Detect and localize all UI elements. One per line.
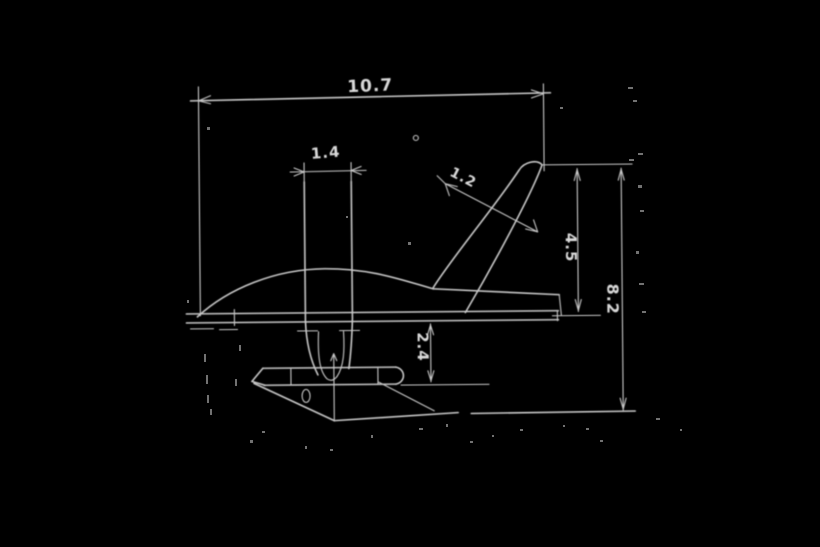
bullet-bottom-edge [264, 384, 396, 385]
bullet-top-edge [263, 367, 396, 368]
drawing-lines: 10.7 1.4 [184, 73, 635, 422]
strut-inner-right [337, 332, 345, 377]
dim-label-fin-height: 4.5 [562, 233, 580, 263]
skeg-bottom-edge [334, 413, 458, 421]
dimension-gearcase-depth: 2.4 [400, 323, 489, 385]
dimension-line [445, 183, 537, 233]
skeg-front-edge [254, 383, 334, 422]
dimension-fin-thickness: 1.2 [437, 164, 538, 233]
strut-inner-bottom [327, 377, 337, 381]
leader-stub [437, 176, 445, 184]
extension-bar [401, 384, 489, 385]
hump-curve [197, 268, 433, 317]
strut-right-line [347, 182, 353, 369]
rear-hook [559, 295, 561, 316]
plate-top-line [186, 311, 558, 314]
base-line [471, 411, 635, 413]
dimension-overall-length: 10.7 [190, 74, 552, 316]
rear-deck-line [433, 288, 559, 296]
dimension-fin-height: 4.5 [551, 168, 600, 315]
drawing-canvas: 10.7 1.4 [0, 0, 820, 547]
bullet-nose-top [252, 368, 263, 381]
extension-line-right [543, 84, 544, 171]
bullet-right-arc [396, 367, 404, 384]
skeg-taper-line [379, 382, 434, 411]
prop-shaft-oval [302, 389, 310, 402]
dim-label-strut-width: 1.4 [310, 143, 341, 163]
fin-top-extension-line [542, 164, 632, 165]
strut-left-line [304, 182, 318, 375]
skeg [254, 382, 458, 422]
outboard-lower-unit-drawing: 10.7 1.4 [0, 0, 820, 547]
center-line [334, 354, 335, 421]
strut-inner-left [318, 332, 327, 379]
plate [186, 307, 558, 330]
dim-label-gearcase-depth: 2.4 [414, 332, 432, 362]
dim-label-overall-length: 10.7 [347, 75, 394, 97]
extension-line-left [198, 87, 200, 316]
scan-noise-specks [187, 87, 682, 451]
stray-circle-mark [413, 135, 418, 140]
dimension-strut-width: 1.4 [290, 142, 366, 182]
plate-bottom-line [186, 320, 558, 323]
dim-label-overall-height: 8.2 [603, 283, 622, 315]
